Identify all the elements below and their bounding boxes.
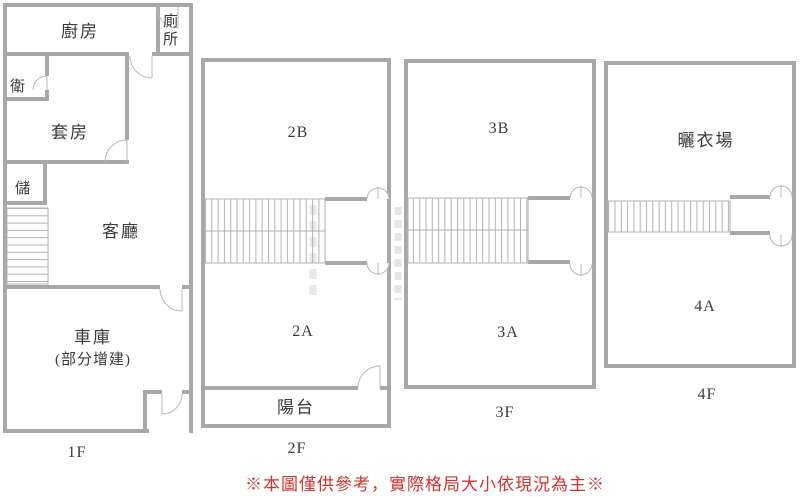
floor-plan-2f: 2B 2A 陽台 2F [201, 58, 391, 457]
floor-plan-1f: 廚房 廁 所 衛 套房 儲 客廳 車庫 (部分增建) 1F [3, 3, 193, 461]
room-label-3b: 3B [489, 120, 510, 137]
floor-label-4f: 4F [698, 386, 717, 403]
room-label-suite: 套房 [51, 123, 89, 142]
room-label-drying-area: 曬衣場 [678, 131, 735, 150]
staircase-4f [608, 201, 730, 232]
room-label-4a: 4A [694, 298, 716, 315]
room-label-kitchen: 廚房 [61, 21, 99, 41]
doors-4f [770, 185, 792, 247]
room-label-bath: 衛 [10, 78, 26, 95]
floor-label-3f: 3F [496, 404, 515, 421]
room-label-living: 客廳 [102, 222, 140, 241]
room-label-garage-line1: 車庫 [74, 328, 112, 347]
floor-label-1f: 1F [68, 444, 87, 461]
floor-plan-3f: 3B 3A 3F [404, 59, 596, 421]
staircase-1f [7, 208, 48, 284]
floor-plan-canvas: 廚房 廁 所 衛 套房 儲 客廳 車庫 (部分增建) 1F [0, 0, 800, 497]
disclaimer-text: ※本圖僅供參考，實際格局大小依現況為主※ [245, 475, 605, 494]
floor-label-2f: 2F [288, 440, 307, 457]
doors-2f [358, 187, 389, 388]
doors-3f [570, 186, 592, 276]
room-label-storage: 儲 [15, 180, 31, 197]
room-label-2a: 2A [292, 323, 314, 340]
room-label-2b: 2B [288, 124, 309, 141]
room-label-toilet-line1: 廁 [163, 12, 179, 30]
watermark-smudge [313, 205, 398, 300]
room-label-balcony: 陽台 [277, 398, 315, 417]
staircase-2f [205, 199, 325, 263]
room-label-garage-line2: (部分增建) [55, 351, 131, 368]
room-label-toilet-line2: 所 [163, 31, 179, 48]
floor-plan-4f: 曬衣場 4A 4F [604, 61, 796, 403]
floor-plan-page: 廚房 廁 所 衛 套房 儲 客廳 車庫 (部分增建) 1F [0, 0, 800, 497]
room-label-3a: 3A [497, 324, 519, 341]
staircase-3f [408, 198, 528, 263]
